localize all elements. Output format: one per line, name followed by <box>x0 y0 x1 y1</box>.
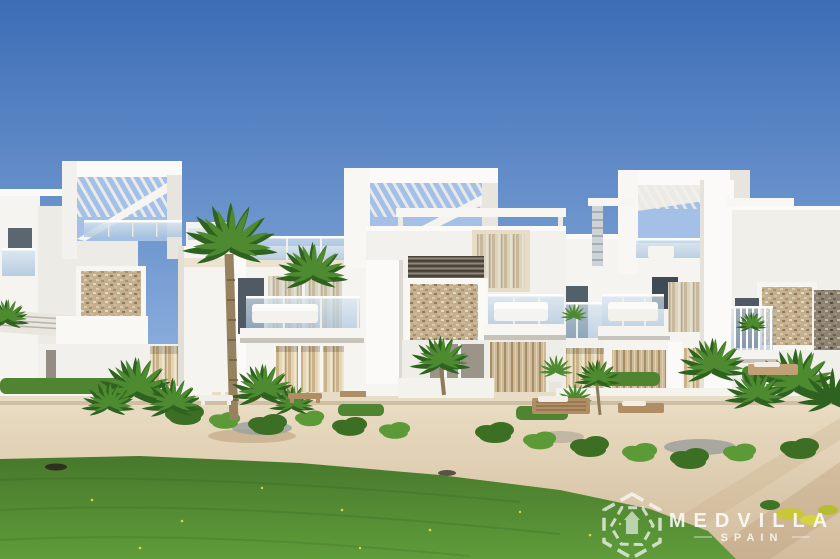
architectural-render: MEDVILLA SPAIN <box>0 0 840 559</box>
brand-text: MEDVILLA <box>669 510 835 532</box>
region-text: SPAIN <box>721 532 784 544</box>
property-render-photo: MEDVILLA SPAIN <box>0 0 840 559</box>
